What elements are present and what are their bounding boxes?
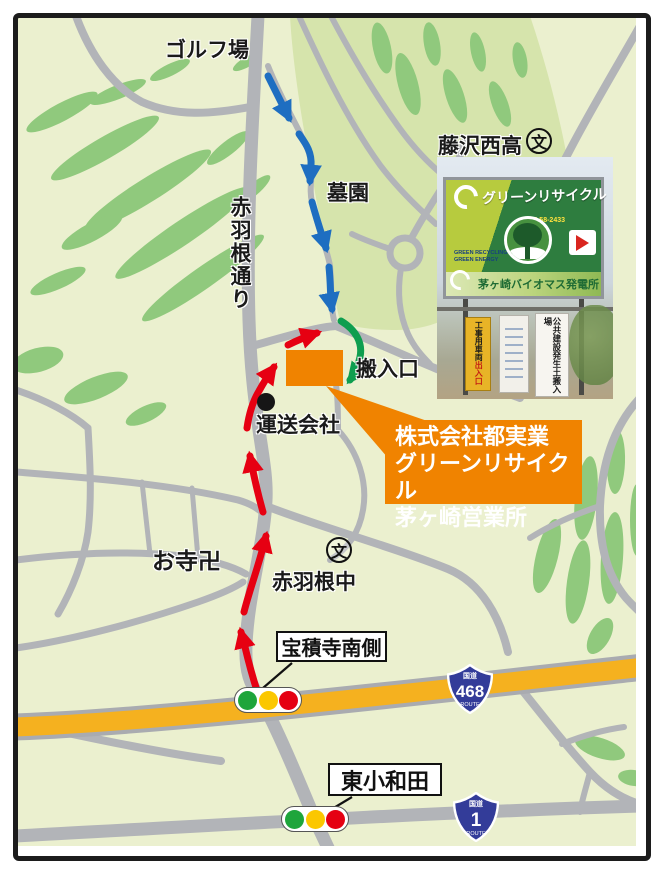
construction-vehicle-sign: 工事用車両出入口 xyxy=(465,317,491,391)
shield-number: 1 xyxy=(471,810,482,831)
billboard-subtitle: 茅ヶ崎バイオマス発電所 xyxy=(478,276,599,292)
shield-number: 468 xyxy=(456,682,484,701)
callout-higashi-kowada: 東小和田 xyxy=(328,763,442,796)
destination-info-box: 株式会社都実業 グリーンリサイクル 茅ヶ崎営業所 xyxy=(385,420,582,504)
traffic-light-hoshakuji xyxy=(234,687,302,713)
right-arrow-icon xyxy=(569,230,596,255)
company-logo-icon xyxy=(449,180,483,214)
signal-red xyxy=(279,691,298,710)
shield-prefix: 国道 xyxy=(469,799,483,808)
signal-green xyxy=(285,810,304,829)
route-468-shield: 国道 468 ROUTE xyxy=(447,664,493,714)
school-symbol-fujisawa: 文 xyxy=(526,128,552,154)
tree-trunk xyxy=(525,245,530,259)
destination-line1: 株式会社都実業 xyxy=(395,423,582,450)
billboard: グリーンリサイクル 0467-58-2433 GREEN RECYCLING G… xyxy=(443,177,604,299)
sign-text: 工事用車両 xyxy=(474,321,483,361)
sign-text-red: 出入口 xyxy=(474,361,483,385)
billboard-small-line1: GREEN RECYCLING xyxy=(454,250,507,257)
sign-text-lines xyxy=(505,322,523,382)
public-construction-sign: 公共建設発生土搬入場 xyxy=(535,313,569,397)
label-carry-in-entrance: 搬入口 xyxy=(356,353,419,383)
billboard-title: グリーンリサイクル xyxy=(482,184,607,208)
destination-line2: グリーンリサイクル xyxy=(395,450,582,504)
billboard-small-text: GREEN RECYCLING GREEN ENERGY xyxy=(454,250,507,264)
tree-logo-icon xyxy=(504,216,552,264)
traffic-light-higashi-kowada xyxy=(281,806,349,832)
billboard-bottom-band: 茅ヶ崎バイオマス発電所 xyxy=(446,272,601,296)
label-fujisawa-nishi-high: 藤沢西高 xyxy=(438,130,522,160)
school-symbol-text: 文 xyxy=(331,538,347,562)
label-akabane-junior-high: 赤羽根中 xyxy=(272,566,356,596)
site-photo: グリーンリサイクル 0467-58-2433 GREEN RECYCLING G… xyxy=(437,157,613,399)
trees xyxy=(569,305,613,385)
notice-sign xyxy=(499,315,529,393)
map-area: ゴルフ場 墓園 赤羽根通り 藤沢西高 文 搬入口 運送会社 お寺卍 文 赤羽根中… xyxy=(18,18,636,846)
label-temple: お寺卍 xyxy=(152,542,221,576)
signal-yellow xyxy=(259,691,278,710)
route-1-shield: 国道 1 ROUTE xyxy=(453,792,499,842)
shield-caption: ROUTE xyxy=(466,831,486,837)
billboard-small-line2: GREEN ENERGY xyxy=(454,257,507,264)
sign-text: 公共建設発生土搬入場 xyxy=(543,314,561,396)
label-cemetery: 墓園 xyxy=(327,177,369,207)
label-akabane-street: 赤羽根通り xyxy=(224,196,254,311)
signal-yellow xyxy=(306,810,325,829)
destination-building xyxy=(286,350,343,386)
label-golf-course: ゴルフ場 xyxy=(165,34,249,64)
callout-hoshakuji-south: 宝積寺南側 xyxy=(276,631,387,662)
school-symbol-text: 文 xyxy=(531,129,547,153)
school-symbol-akabane: 文 xyxy=(326,537,352,563)
signal-green xyxy=(238,691,257,710)
shield-caption: ROUTE xyxy=(460,702,480,708)
signal-red xyxy=(326,810,345,829)
tree-crown xyxy=(513,223,542,247)
destination-line3: 茅ヶ崎営業所 xyxy=(395,504,582,531)
shield-prefix: 国道 xyxy=(463,671,477,680)
label-transport-company: 運送会社 xyxy=(256,409,340,439)
company-logo-icon xyxy=(446,266,474,294)
access-map: ゴルフ場 墓園 赤羽根通り 藤沢西高 文 搬入口 運送会社 お寺卍 文 赤羽根中… xyxy=(0,0,660,870)
